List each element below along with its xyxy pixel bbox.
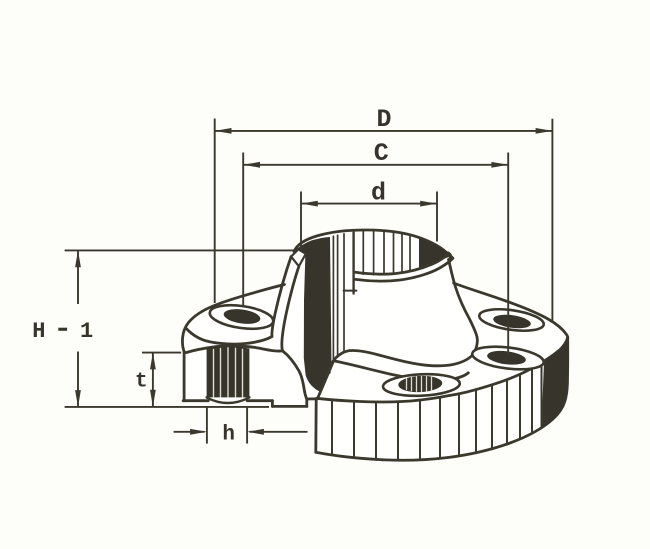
svg-text:C: C (374, 139, 389, 168)
svg-text:1: 1 (80, 319, 93, 344)
svg-text:t: t (135, 371, 148, 394)
svg-text:H: H (32, 319, 45, 344)
svg-text:d: d (371, 179, 386, 208)
svg-text:D: D (376, 105, 391, 134)
svg-text:h: h (222, 424, 235, 447)
